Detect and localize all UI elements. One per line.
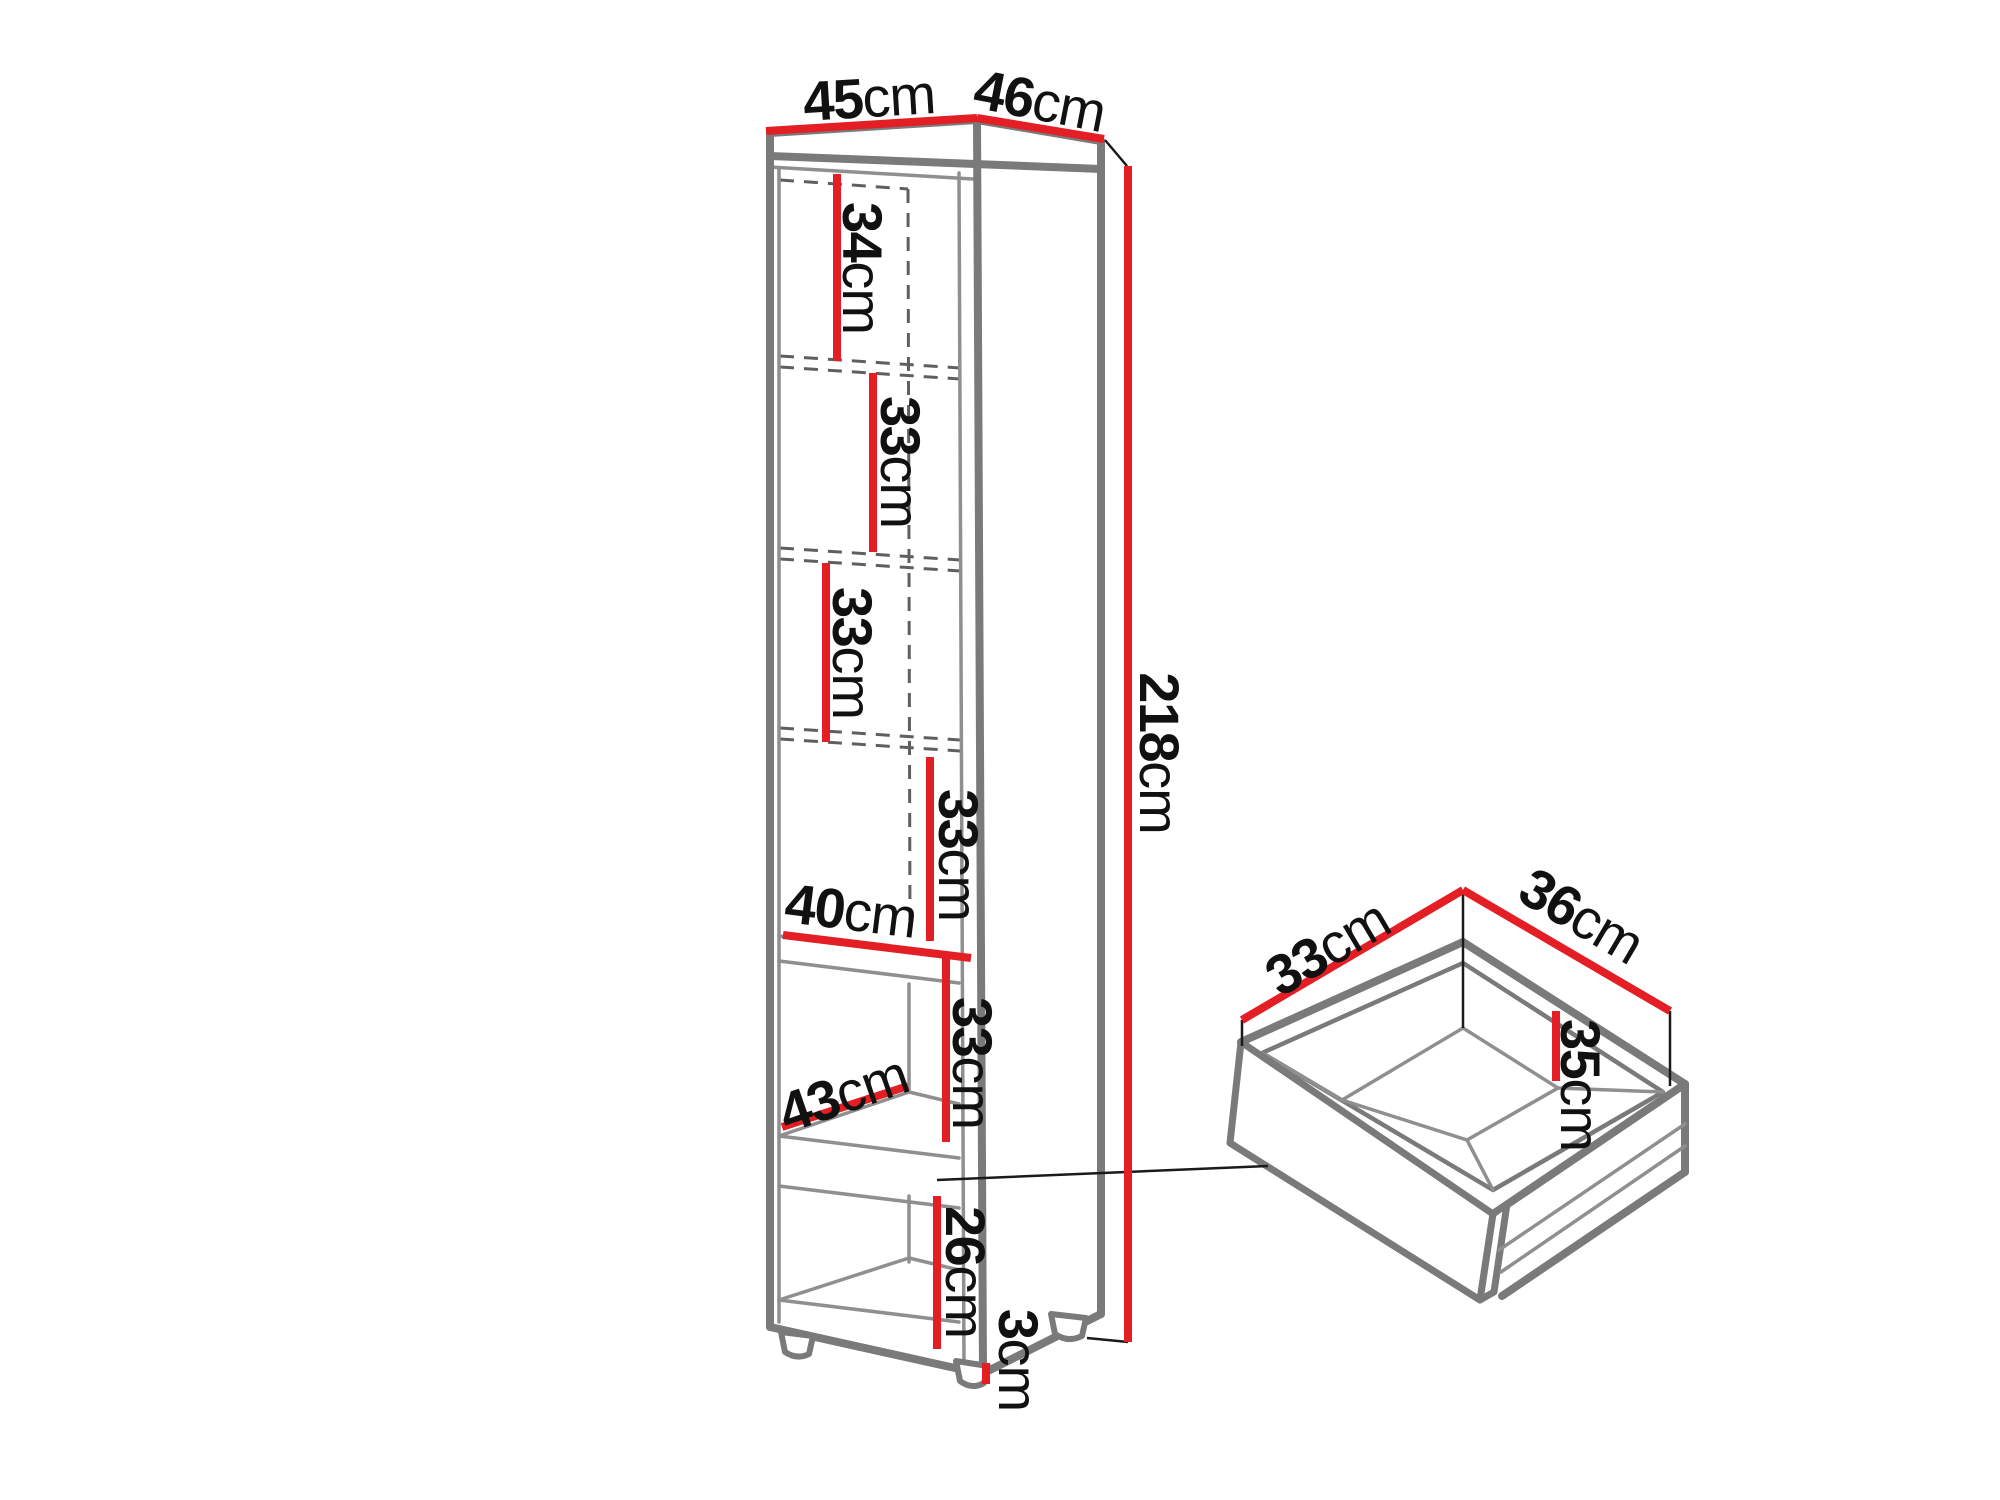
label-drawer-inner: 35cm — [1550, 1019, 1613, 1151]
label-section-5: 33cm — [942, 997, 1005, 1129]
cabinet-front-corner-edge — [977, 120, 983, 1374]
cabinet-foot-side-right — [1051, 1314, 1086, 1339]
label-top-width: 45cm — [801, 62, 937, 133]
dimension-labels: 45cm 46cm 218cm 34cm 33cm 33cm 33cm 33cm… — [770, 56, 1654, 1411]
cabinet-foot-front-left — [781, 1332, 813, 1357]
label-section-3: 33cm — [822, 587, 885, 719]
drawer-front-panel — [1230, 1042, 1493, 1300]
furniture-dimension-diagram: 45cm 46cm 218cm 34cm 33cm 33cm 33cm 33cm… — [0, 0, 2000, 1500]
diagram-canvas: 45cm 46cm 218cm 34cm 33cm 33cm 33cm 33cm… — [0, 0, 2000, 1500]
label-drawer-width: 33cm — [1254, 886, 1400, 1007]
label-foot-height: 3cm — [988, 1309, 1051, 1411]
label-section-2: 33cm — [870, 396, 933, 528]
label-section-1: 34cm — [832, 202, 895, 334]
label-shelf-depth: 43cm — [770, 1042, 915, 1145]
cabinet-outline — [770, 120, 1101, 1374]
hidden-back-corner-line — [908, 189, 910, 932]
label-section-4: 33cm — [928, 789, 991, 921]
label-top-depth: 46cm — [969, 56, 1111, 143]
cabinet-interior-lines — [770, 167, 973, 1366]
dimension-lines — [766, 118, 1670, 1384]
label-total-height: 218cm — [1129, 672, 1192, 834]
